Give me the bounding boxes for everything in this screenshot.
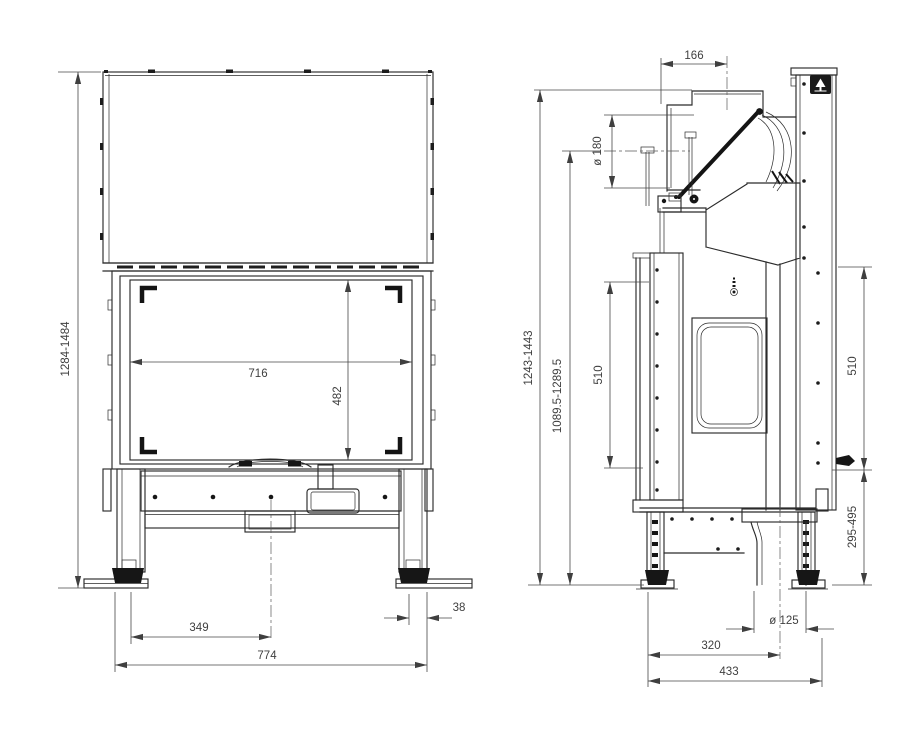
hinge-box — [658, 196, 681, 212]
side-rear-foot — [792, 570, 825, 588]
center-to-leg-label: 349 — [189, 622, 208, 634]
rear-panel-height-label: 510 — [847, 356, 859, 375]
base-clearance-label: 295-495 — [847, 506, 859, 548]
damper-mechanism — [669, 108, 793, 201]
side-cutout-panel — [692, 318, 767, 433]
back-panel — [791, 68, 855, 511]
technical-drawing: 1284-1484 716 482 349 774 38 — [0, 0, 924, 741]
rear-bracket — [836, 455, 855, 466]
dim-flue-diameter: ø 180 — [592, 115, 694, 188]
glass-width-label: 716 — [248, 368, 267, 380]
foot-offset-label: 38 — [453, 602, 466, 614]
spring-coil — [772, 171, 793, 184]
dim-rear-panel-height: 510 — [832, 267, 872, 470]
dim-glass-width: 716 — [130, 362, 412, 380]
right-leg — [399, 469, 427, 572]
glass-door — [108, 271, 435, 469]
overall-depth-label: 433 — [719, 666, 738, 678]
dim-foot-offset: 38 — [384, 594, 465, 625]
flue-pipe — [667, 56, 796, 191]
glass-corner-bracket — [142, 288, 400, 452]
door-glass-edge — [636, 258, 640, 500]
control-box — [307, 489, 359, 513]
glass-height-label: 482 — [332, 386, 344, 405]
front-overall-height-label: 1284-1484 — [60, 321, 72, 377]
dim-flue-center-offset: 166 — [661, 50, 727, 104]
right-adjustable-foot — [396, 560, 472, 588]
side-view: 166 ø 180 1243-1443 1089.5-1289.5 510 51… — [523, 50, 872, 687]
air-inlet-center-label: 320 — [701, 640, 720, 652]
screw-ticks — [100, 70, 434, 241]
left-adjustable-foot — [84, 560, 148, 588]
flue-center-offset-label: 166 — [684, 50, 703, 62]
door-lift-rods — [641, 132, 699, 206]
flue-center-height-label: 1089.5-1289.5 — [552, 359, 564, 433]
door-top-rail — [103, 263, 433, 271]
dim-glass-height: 482 — [332, 280, 348, 460]
dim-base-clearance: 295-495 — [832, 470, 872, 585]
front-overall-width-label: 774 — [257, 650, 277, 662]
side-front-foot — [641, 570, 674, 588]
flue-top-height-label: 1243-1443 — [523, 331, 535, 386]
side-base — [636, 505, 828, 659]
door-side-rail — [633, 253, 683, 512]
air-inlet-diameter-label: ø 125 — [769, 615, 798, 627]
brand-badge-icon — [810, 75, 831, 94]
dim-door-height: 510 — [593, 282, 649, 468]
base-assembly — [103, 465, 433, 532]
side-front-leg — [647, 512, 664, 577]
dim-overall-depth: 433 — [648, 638, 822, 687]
front-view: 1284-1484 716 482 349 774 38 — [58, 70, 472, 673]
door-height-label: 510 — [593, 365, 605, 384]
dim-front-overall-height: 1284-1484 — [58, 72, 101, 588]
hood-casing — [100, 70, 434, 264]
door-sill — [633, 500, 683, 512]
dim-center-to-leg: 349 — [131, 592, 271, 644]
damper-spring — [758, 112, 791, 191]
drawing-canvas: 1284-1484 716 482 349 774 38 — [0, 0, 924, 741]
dim-air-inlet-center: 320 — [648, 592, 780, 687]
keyhole-detail — [731, 278, 738, 296]
panel-screws — [802, 82, 820, 465]
